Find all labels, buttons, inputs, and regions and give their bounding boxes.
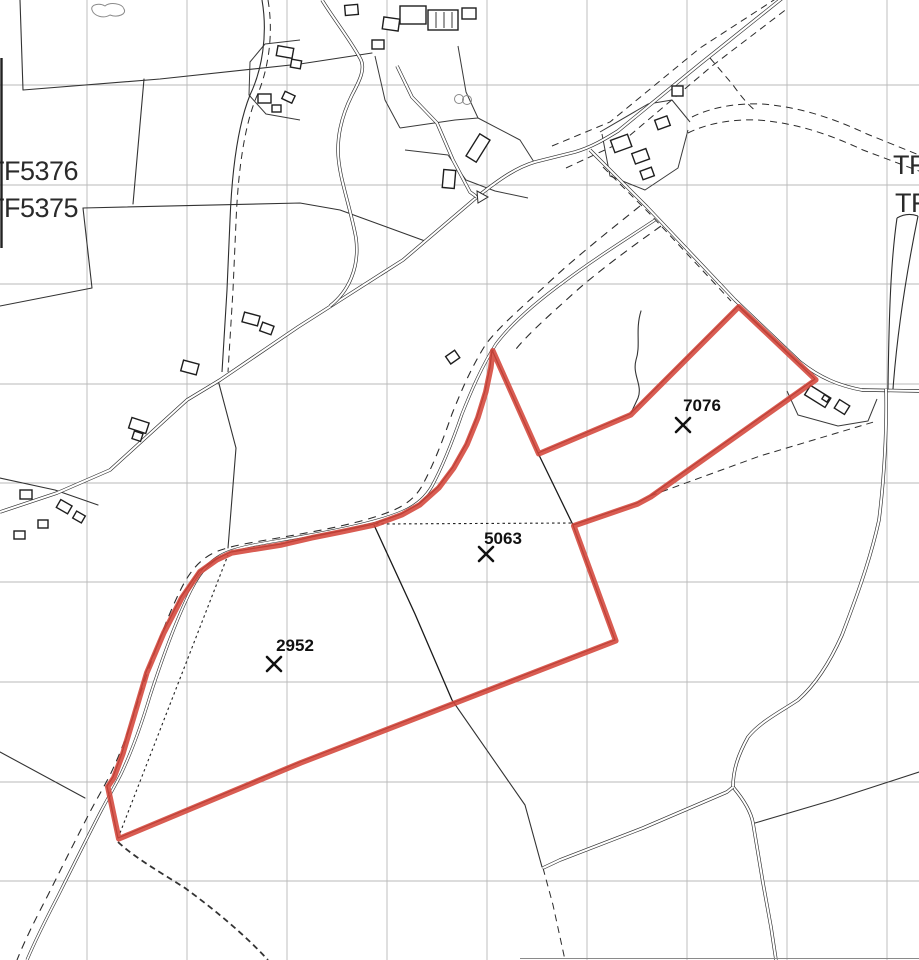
parcel-number-5063: 5063 <box>484 529 522 548</box>
grid-ref-label-left-bottom: TF5375 <box>0 193 78 223</box>
parcel-marker-x-7076 <box>676 418 690 432</box>
parcel-marker-x-2952 <box>267 657 281 671</box>
scan-artifacts <box>2 58 919 959</box>
road-village-north <box>322 0 362 306</box>
pond-outline <box>92 4 125 17</box>
road-northeast <box>477 0 785 197</box>
parcel-number-7076: 7076 <box>683 396 721 415</box>
road-dead-end-north <box>888 214 918 389</box>
grid-ref-label-right-top: TF <box>893 150 919 180</box>
grid-ref-label-left-top: TF5376 <box>0 156 78 186</box>
parcel-number-2952: 2952 <box>276 636 314 655</box>
road-southeast <box>590 150 919 391</box>
green-lane-track <box>27 220 655 960</box>
land-parcel-red-boundary <box>108 307 816 839</box>
road-main-southwest <box>0 197 477 512</box>
parcel-marker-x-5063 <box>479 547 493 561</box>
map-plan-canvas: TF5376 TF5375 TF TF 7076 5063 2952 <box>0 0 919 960</box>
map-plan-page: TF5376 TF5375 TF TF 7076 5063 2952 <box>0 0 919 960</box>
dashed-tracks <box>17 0 919 960</box>
road-east-southern <box>543 389 886 960</box>
grid-ref-label-right-bottom: TF <box>895 188 919 218</box>
